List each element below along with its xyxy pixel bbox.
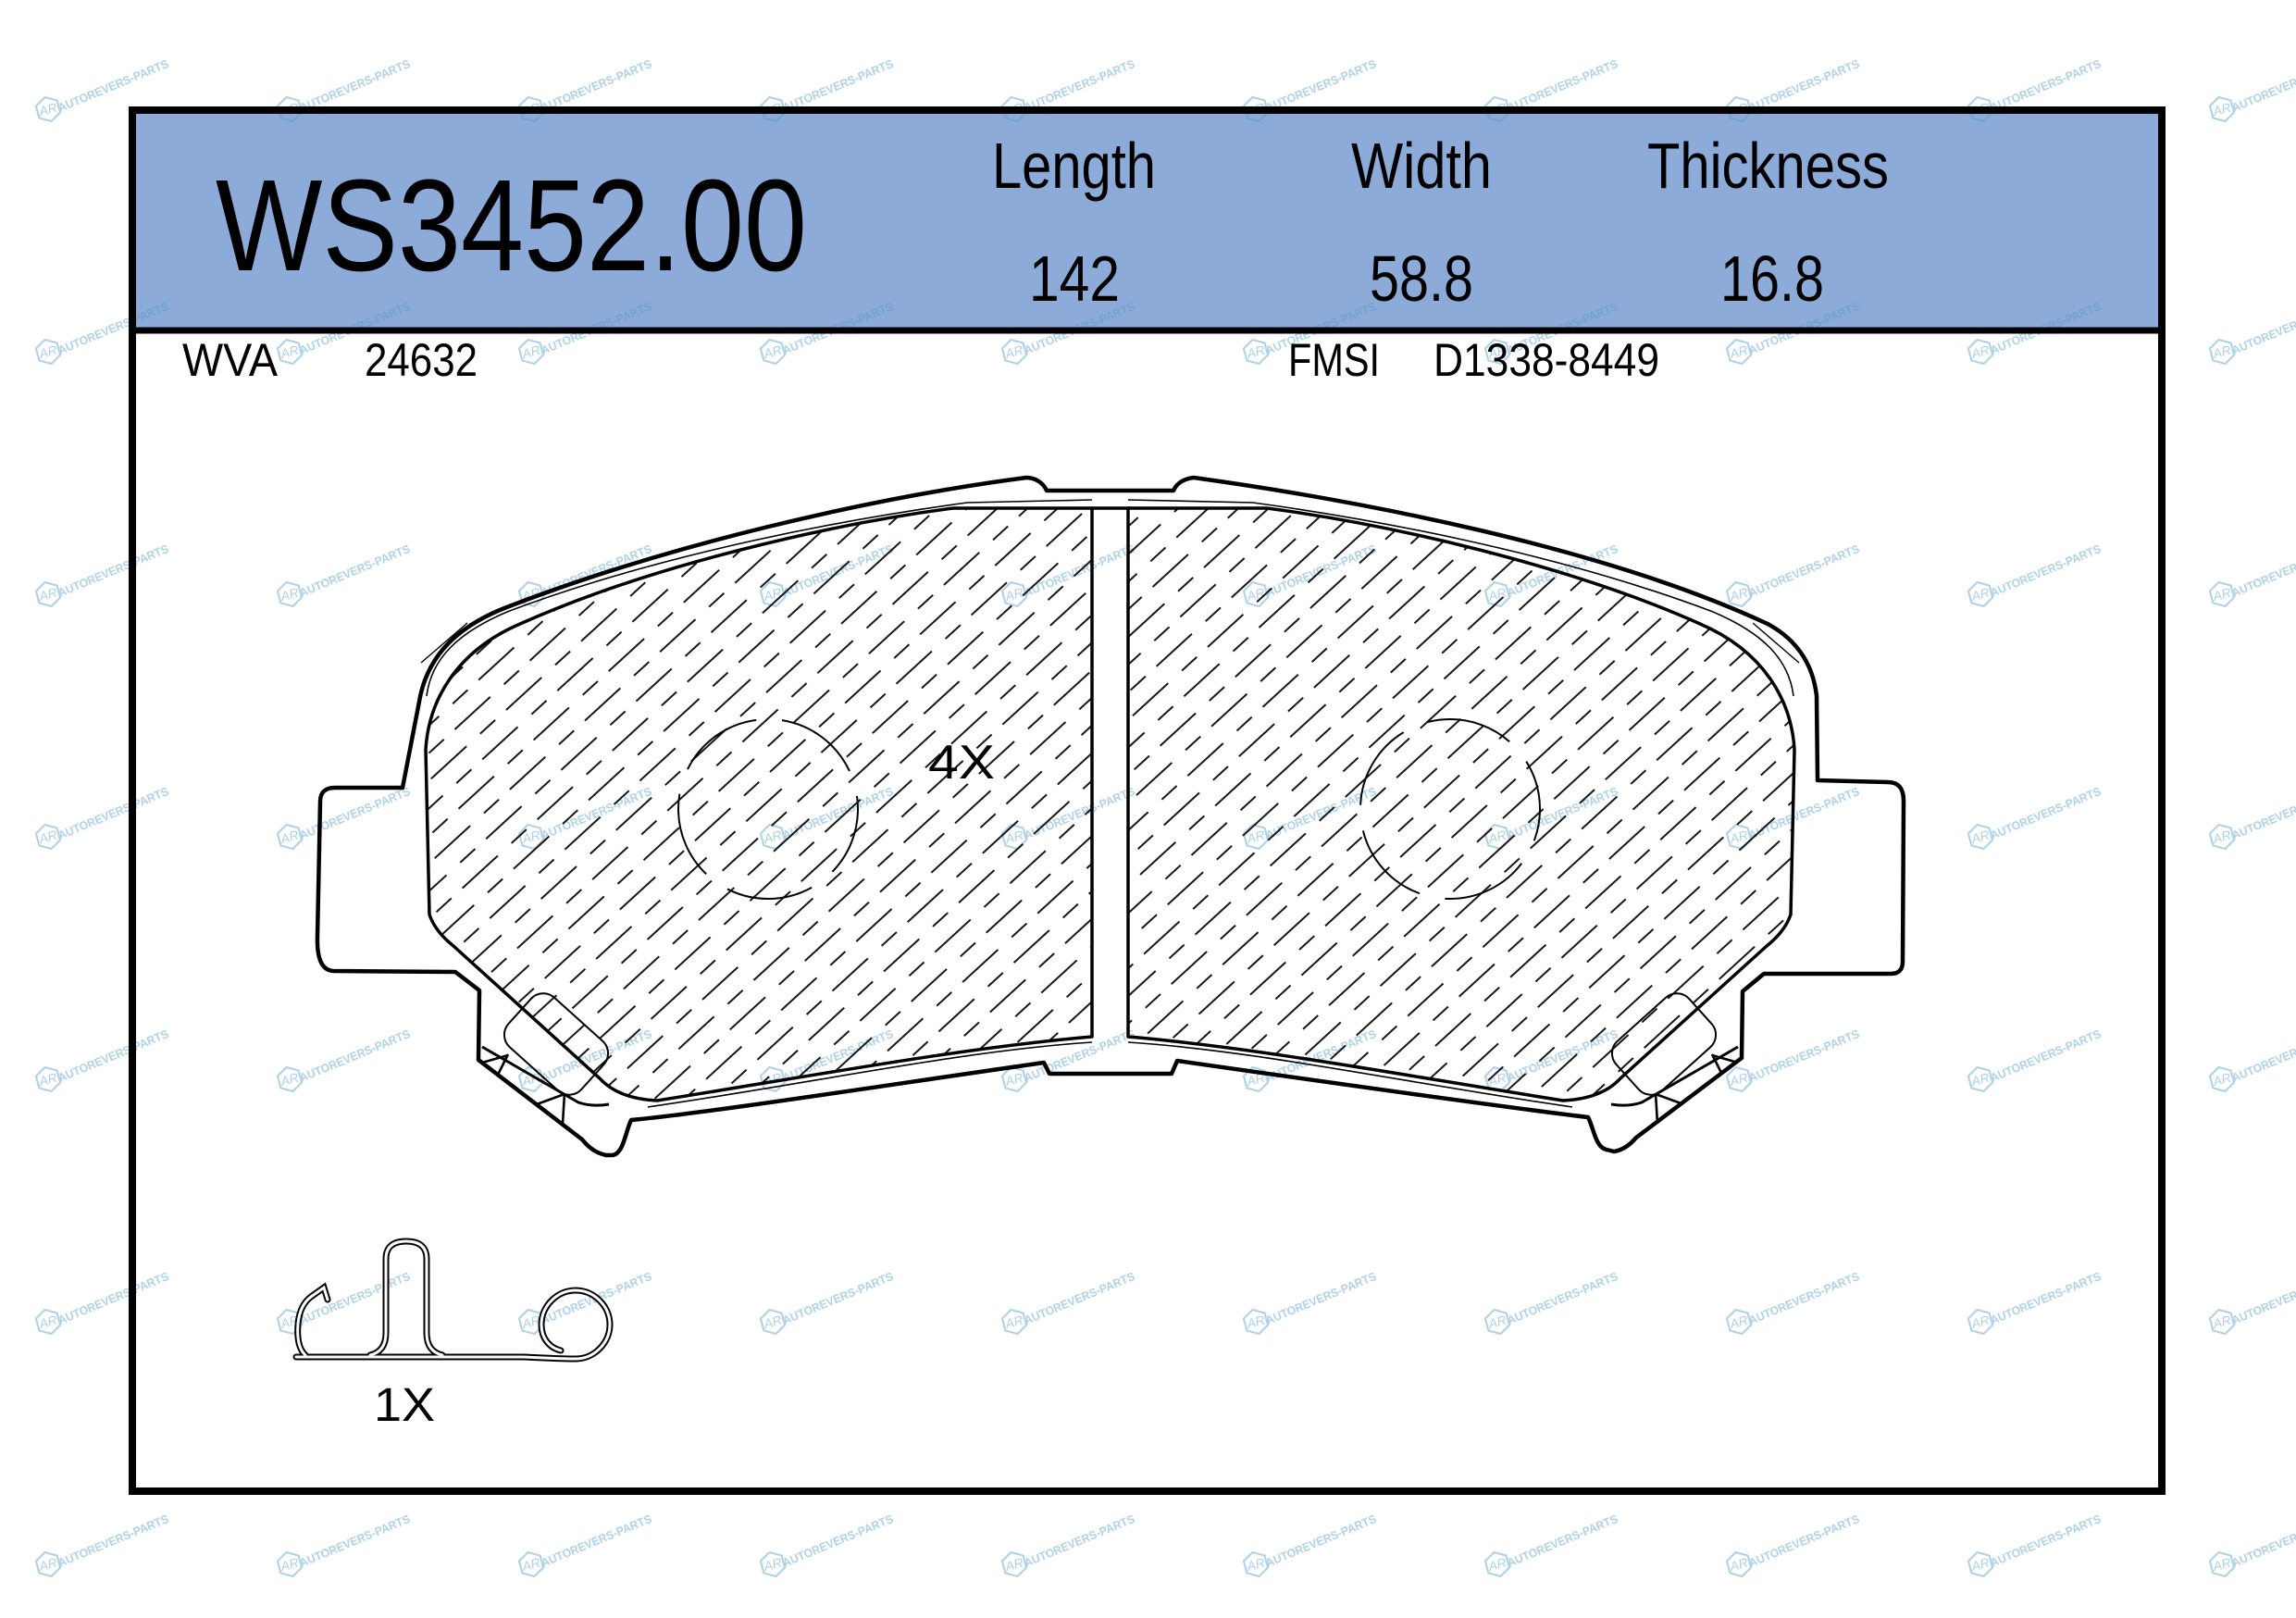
svg-text:4X: 4X bbox=[928, 736, 995, 790]
svg-text:WVA: WVA bbox=[182, 334, 279, 386]
svg-text:142: 142 bbox=[1029, 243, 1120, 315]
svg-text:1X: 1X bbox=[374, 1378, 435, 1431]
svg-text:Thickness: Thickness bbox=[1647, 130, 1889, 202]
svg-text:WS3452.00: WS3452.00 bbox=[216, 152, 807, 298]
svg-text:D1338-8449: D1338-8449 bbox=[1433, 334, 1659, 386]
svg-text:58.8: 58.8 bbox=[1370, 243, 1473, 315]
svg-text:Length: Length bbox=[992, 130, 1156, 202]
svg-text:24632: 24632 bbox=[365, 334, 478, 386]
svg-text:Width: Width bbox=[1351, 130, 1492, 202]
svg-text:16.8: 16.8 bbox=[1720, 243, 1824, 315]
svg-text:FMSI: FMSI bbox=[1288, 334, 1380, 386]
